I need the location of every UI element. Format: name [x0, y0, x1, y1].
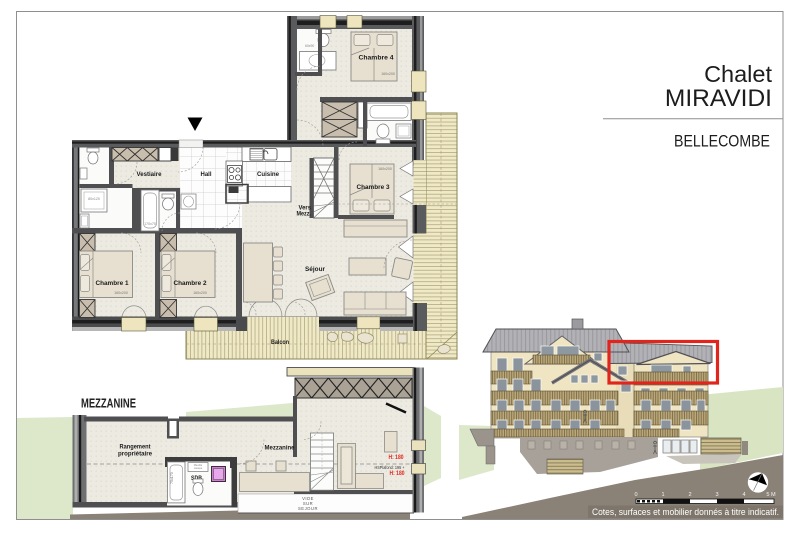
- svg-text:3: 3: [715, 492, 718, 498]
- svg-text:Balcon: Balcon: [271, 339, 289, 346]
- svg-text:160x200: 160x200: [193, 291, 207, 295]
- svg-text:5 M: 5 M: [766, 492, 776, 498]
- svg-text:Hall: Hall: [201, 171, 212, 178]
- svg-text:2: 2: [688, 492, 691, 498]
- svg-text:Cuisine: Cuisine: [257, 171, 279, 178]
- svg-text:Vestiaire: Vestiaire: [137, 171, 162, 178]
- svg-text:MEZZANINE: MEZZANINE: [81, 396, 136, 411]
- svg-text:160x200: 160x200: [378, 167, 392, 171]
- svg-text:H: 180: H: 180: [389, 454, 404, 461]
- svg-text:Mezz.: Mezz.: [297, 211, 312, 218]
- svg-text:60x90: 60x90: [305, 44, 314, 48]
- svg-text:Chalet: Chalet: [704, 61, 772, 87]
- svg-text:170x75: 170x75: [144, 222, 156, 226]
- svg-text:1: 1: [661, 492, 664, 498]
- svg-text:75x170: 75x170: [170, 472, 174, 484]
- svg-text:H: 180: H: 180: [390, 470, 405, 477]
- svg-text:Chambre 2: Chambre 2: [174, 280, 207, 287]
- svg-text:SEJOUR: SEJOUR: [298, 506, 318, 511]
- svg-text:4: 4: [742, 492, 745, 498]
- svg-text:Chambre 1: Chambre 1: [96, 280, 129, 287]
- svg-text:Chambre 4: Chambre 4: [359, 55, 394, 62]
- svg-text:BELLECOMBE: BELLECOMBE: [674, 133, 770, 151]
- svg-text:MIRAVIDI: MIRAVIDI: [665, 85, 772, 112]
- svg-text:propriétaire: propriétaire: [118, 451, 152, 458]
- svg-text:Séjour: Séjour: [305, 266, 325, 273]
- svg-text:Rangement: Rangement: [120, 444, 152, 451]
- svg-text:Chambre 3: Chambre 3: [357, 184, 390, 191]
- svg-text:Mezzanine: Mezzanine: [265, 445, 295, 452]
- svg-text:160x200: 160x200: [114, 291, 128, 295]
- svg-text:Cotes, surfaces et mobilier do: Cotes, surfaces et mobilier donnés à tit…: [592, 507, 779, 517]
- svg-text:160x200: 160x200: [381, 72, 395, 76]
- svg-text:80x120: 80x120: [88, 197, 100, 201]
- svg-text:vasque: vasque: [194, 467, 203, 470]
- svg-text:0: 0: [634, 492, 637, 498]
